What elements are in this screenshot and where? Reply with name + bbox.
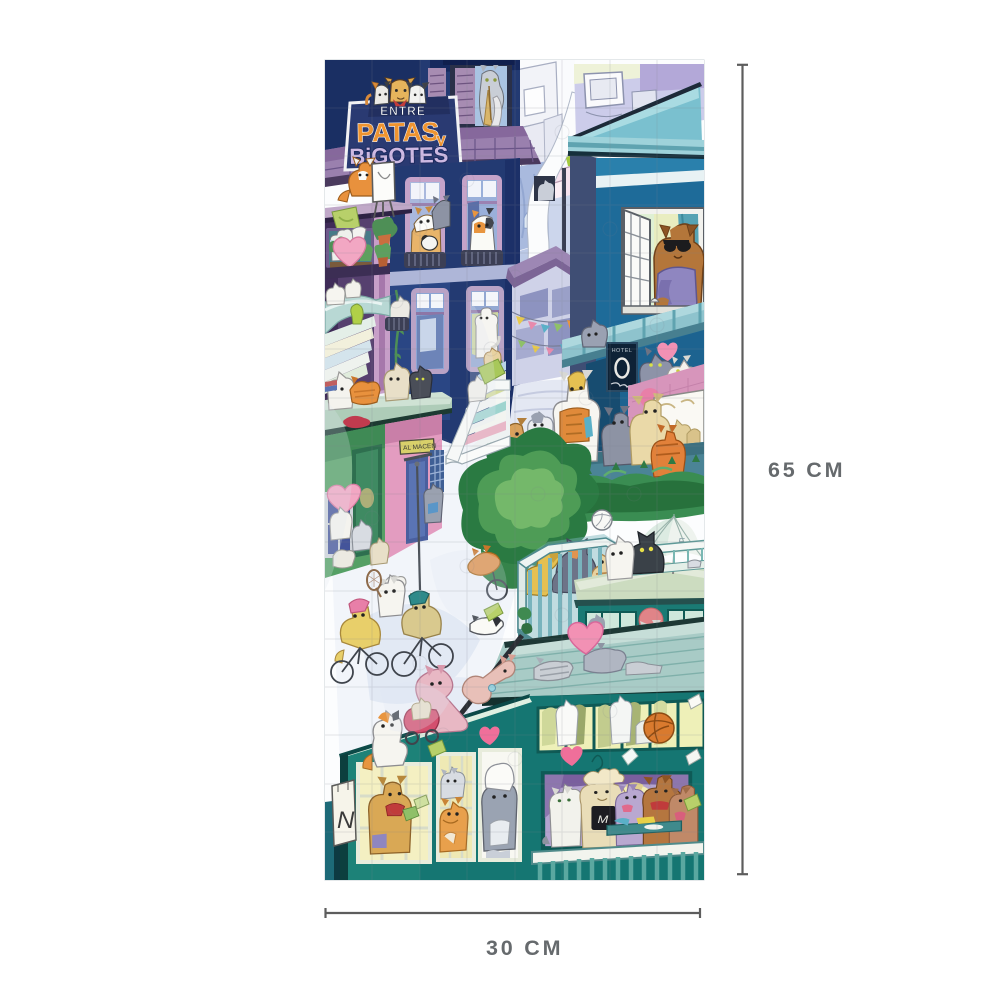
svg-text:65 CM: 65 CM	[768, 458, 845, 482]
svg-text:30 CM: 30 CM	[486, 936, 563, 960]
svg-text:M: M	[598, 813, 610, 826]
svg-text:N: N	[337, 807, 355, 834]
